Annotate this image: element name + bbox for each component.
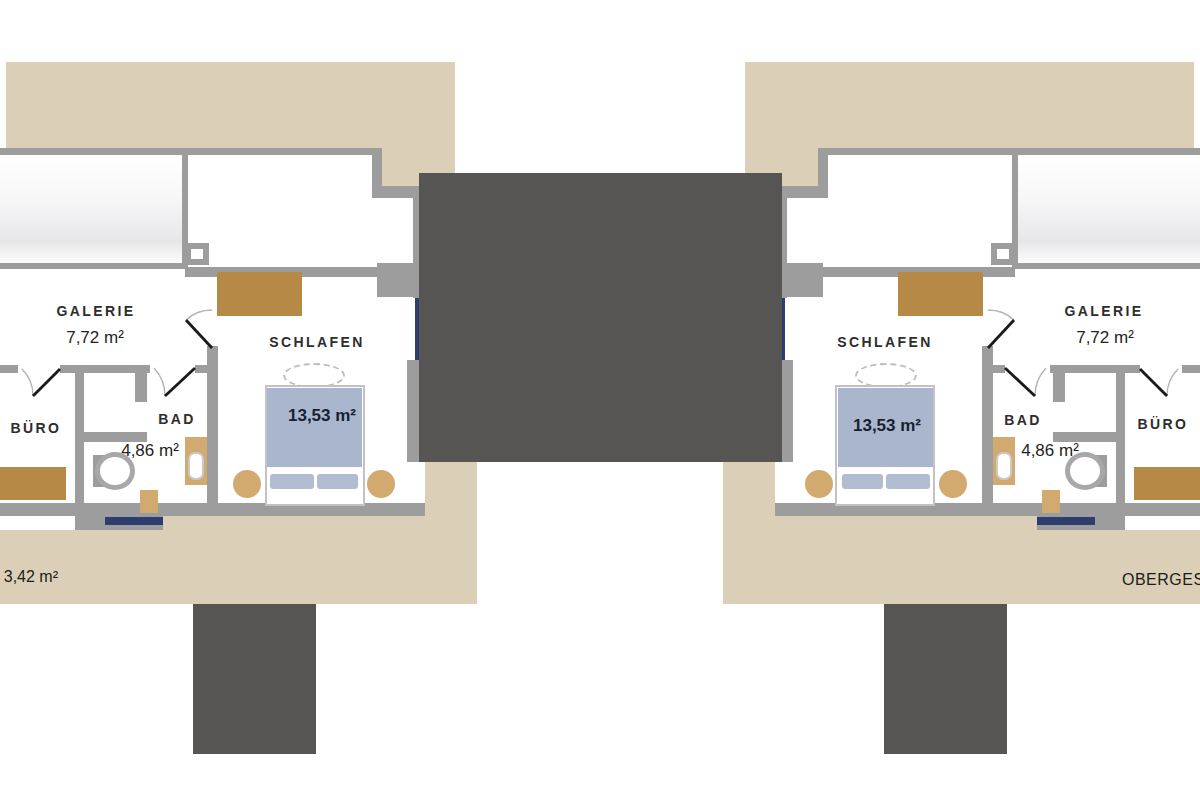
- area-label-schlafen-right: 13,53 m²: [853, 416, 921, 436]
- door-leaf-office: [1140, 369, 1167, 396]
- room-label-buero-right: BÜRO: [1138, 416, 1189, 432]
- floor-caption-right: OBERGES: [1122, 571, 1200, 589]
- room-label-bad-left: BAD: [158, 411, 196, 427]
- area-label-bad-right: 4,86 m²: [1021, 441, 1079, 461]
- room-label-galerie-left: GALERIE: [56, 303, 135, 319]
- door-leaf-bath: [1005, 368, 1035, 396]
- door-arc: [988, 310, 1014, 320]
- door-leaf-bedroom: [988, 320, 1014, 348]
- floor-caption-left: 3,42 m²: [4, 568, 58, 586]
- door-arc: [1167, 369, 1178, 396]
- chimney-block: [884, 604, 1007, 754]
- room-label-schlafen-right: SCHLAFEN: [837, 334, 932, 350]
- area-label-galerie-left: 7,72 m²: [66, 328, 124, 348]
- room-label-galerie-right: GALERIE: [1064, 303, 1143, 319]
- center-roof-block: [419, 173, 782, 462]
- room-label-schlafen-left: SCHLAFEN: [269, 334, 364, 350]
- area-label-bad-left: 4,86 m²: [121, 441, 179, 461]
- area-label-schlafen-left: 13,53 m²: [288, 406, 356, 426]
- room-label-bad-right: BAD: [1004, 412, 1042, 428]
- door-arc: [1035, 368, 1046, 396]
- area-label-galerie-right: 7,72 m²: [1076, 328, 1134, 348]
- room-label-buero-left: BÜRO: [11, 420, 62, 436]
- floor-plan-canvas: GALERIE 7,72 m² SCHLAFEN 13,53 m² BÜRO B…: [0, 0, 1200, 800]
